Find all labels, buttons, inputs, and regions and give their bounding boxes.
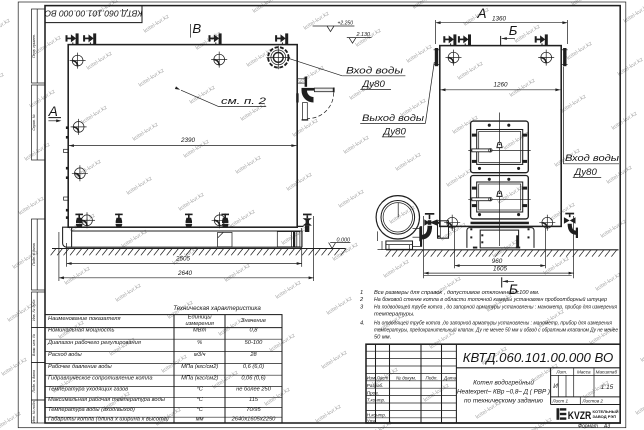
svg-text:Котел водогрейный: Котел водогрейный [473, 379, 534, 387]
svg-text:Листов 2: Листов 2 [581, 399, 603, 404]
svg-text:измерения: измерения [185, 321, 213, 327]
svg-text:Температура воды (вход/выход): Температура воды (вход/выход) [48, 407, 135, 413]
svg-text:Утв.: Утв. [367, 419, 377, 424]
svg-text:Расход воды: Расход воды [48, 352, 82, 358]
svg-text:KVZR: KVZR [568, 410, 592, 422]
svg-text:Инв. № подл.: Инв. № подл. [32, 400, 36, 422]
svg-text:МПа (кгс/см2): МПа (кгс/см2) [181, 376, 218, 382]
svg-text:Инв. № дубл.: Инв. № дубл. [32, 299, 36, 321]
svg-text:МВт: МВт [193, 328, 207, 334]
svg-text:А: А [477, 6, 487, 21]
svg-text:температуры, предохранительный: температуры, предохранительный клапан. Д… [374, 326, 618, 333]
svg-text:Ду80: Ду80 [362, 79, 386, 90]
svg-text:Н.контр.: Н.контр. [367, 412, 386, 417]
svg-text:1: 1 [360, 290, 363, 296]
svg-text:1260: 1260 [493, 81, 508, 88]
svg-text:0.000: 0.000 [337, 237, 351, 243]
svg-text:50 мм.: 50 мм. [374, 334, 391, 340]
svg-text:не более 250: не более 250 [236, 387, 272, 393]
svg-text:Единицы: Единицы [188, 314, 213, 320]
svg-text:Гидравлическое сопротивление к: Гидравлическое сопротивление котла [48, 376, 153, 382]
svg-text:°С: °С [197, 397, 204, 403]
svg-text:Б: Б [509, 23, 518, 38]
svg-text:70/95: 70/95 [246, 407, 261, 413]
svg-text:Лист 1: Лист 1 [551, 399, 568, 404]
svg-text:1605: 1605 [493, 266, 508, 273]
svg-text:115: 115 [249, 397, 259, 403]
svg-text:Вход воды: Вход воды [565, 153, 619, 164]
svg-text:Диапазон рабочего регулировани: Диапазон рабочего регулирования [47, 340, 141, 346]
svg-text:Подп.: Подп. [426, 376, 438, 381]
svg-text:Т.контр.: Т.контр. [367, 398, 386, 403]
svg-text:Изм.: Изм. [367, 376, 377, 381]
svg-text:Разраб.: Разраб. [367, 383, 384, 388]
svg-text:Наименование показателя: Наименование показателя [48, 316, 121, 322]
svg-text:28: 28 [249, 352, 257, 358]
svg-text:Ду80: Ду80 [383, 127, 407, 138]
svg-text:А: А [48, 104, 58, 119]
svg-text:2505: 2505 [175, 256, 191, 263]
svg-text:И: И [553, 383, 558, 390]
svg-text:Масштаб: Масштаб [596, 369, 618, 374]
svg-text:ЗАВОД РЭП: ЗАВОД РЭП [593, 414, 617, 419]
svg-text:Температура уходящих газов: Температура уходящих газов [48, 387, 128, 393]
svg-text:50-100: 50-100 [245, 340, 264, 346]
svg-text:+2.250: +2.250 [338, 21, 354, 27]
svg-text:Рабочее давление воды: Рабочее давление воды [48, 364, 113, 370]
svg-text:0,6 (6,0): 0,6 (6,0) [243, 364, 264, 370]
svg-text:м3/ч: м3/ч [194, 352, 206, 358]
svg-text:МПа (кгс/см2): МПа (кгс/см2) [181, 364, 218, 370]
svg-text:Перв. примен.: Перв. примен. [32, 34, 36, 58]
svg-text:1360: 1360 [492, 16, 507, 23]
svg-text:Габариты котла (длина х ширина: Габариты котла (длина х ширина х высота) [48, 416, 169, 422]
svg-text:Подп. и дата: Подп. и дата [32, 243, 36, 266]
svg-text:4.: 4. [360, 320, 365, 326]
svg-text:Масса: Масса [577, 369, 591, 374]
svg-text:КВТД.060.101.00.000 ВО: КВТД.060.101.00.000 ВО [44, 9, 142, 19]
svg-text:Лит.: Лит. [555, 369, 567, 374]
svg-text:На боковой стенке котла в обла: На боковой стенке котла в области топочн… [374, 296, 607, 303]
svg-text:На подводящей трубе котла ,: На подводящей трубе котла , до запорной … [374, 304, 617, 311]
svg-text:2640: 2640 [177, 270, 193, 277]
svg-text:КВТД.060.101.00.000 ВО: КВТД.060.101.00.000 ВО [463, 350, 614, 365]
svg-text:Техническая характеристика: Техническая характеристика [173, 305, 261, 312]
svg-text:по техническому заданию: по техническому заданию [464, 396, 543, 404]
svg-text:температуры.: температуры. [374, 312, 415, 318]
svg-text:Подп. и дата: Подп. и дата [32, 370, 36, 393]
svg-text:Вход воды: Вход воды [346, 65, 403, 76]
svg-text:А3: А3 [603, 423, 610, 429]
svg-text:Heatexpert– КВр –0,8– Д ( РВР: Heatexpert– КВр –0,8– Д ( РВР ) [457, 389, 550, 396]
svg-text:2.130: 2.130 [356, 32, 371, 38]
svg-text:мм: мм [196, 416, 204, 422]
svg-text:На отводящей трубе котла ,до з: На отводящей трубе котла ,до запорной ар… [374, 319, 612, 326]
svg-text:Лист: Лист [376, 376, 389, 381]
svg-text:Взам. инв. №: Взам. инв. № [32, 334, 36, 356]
svg-text:0,8: 0,8 [250, 328, 259, 334]
svg-text:°С: °С [197, 387, 204, 393]
svg-text:2640х1605х2250: 2640х1605х2250 [231, 416, 276, 422]
svg-text:КОТЕЛЬНЫЙ: КОТЕЛЬНЫЙ [593, 409, 619, 414]
svg-text:Выход воды: Выход воды [362, 113, 424, 124]
svg-text:Справ. №: Справ. № [32, 114, 36, 130]
svg-text:Значение: Значение [241, 318, 266, 324]
svg-text:0,06 (0,6): 0,06 (0,6) [241, 376, 265, 382]
svg-text:Дата: Дата [443, 376, 457, 381]
svg-text:№ докум.: № докум. [396, 376, 416, 381]
svg-text:Формат: Формат [578, 423, 598, 429]
svg-text:В: В [192, 21, 201, 36]
svg-text:Номинальная мощность: Номинальная мощность [48, 328, 114, 334]
svg-text:Пров.: Пров. [367, 390, 379, 395]
svg-text:Все размеры для справок , допу: Все размеры для справок , допустимое отк… [374, 290, 540, 296]
svg-text:Ду80: Ду80 [574, 167, 598, 178]
svg-text:Максимальная рабочая температу: Максимальная рабочая температура воды [48, 397, 166, 403]
svg-text:960: 960 [492, 258, 503, 265]
svg-text:2390: 2390 [180, 137, 196, 144]
svg-text:1:15: 1:15 [601, 384, 614, 391]
svg-text:%: % [197, 340, 202, 346]
svg-text:см. п. 2: см. п. 2 [221, 95, 267, 106]
svg-text:°С: °С [197, 407, 204, 413]
